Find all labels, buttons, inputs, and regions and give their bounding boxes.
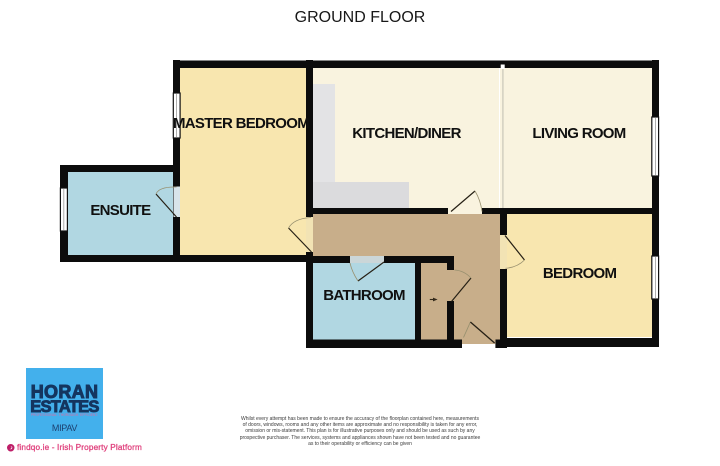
svg-text:LIVING ROOM: LIVING ROOM (532, 125, 625, 142)
svg-text:BATHROOM: BATHROOM (323, 287, 405, 304)
svg-text:BEDROOM: BEDROOM (543, 265, 617, 282)
svg-text:ENSUITE: ENSUITE (90, 202, 151, 219)
svg-text:MASTER BEDROOM: MASTER BEDROOM (173, 115, 309, 132)
svg-text:KITCHEN/DINER: KITCHEN/DINER (352, 125, 461, 142)
